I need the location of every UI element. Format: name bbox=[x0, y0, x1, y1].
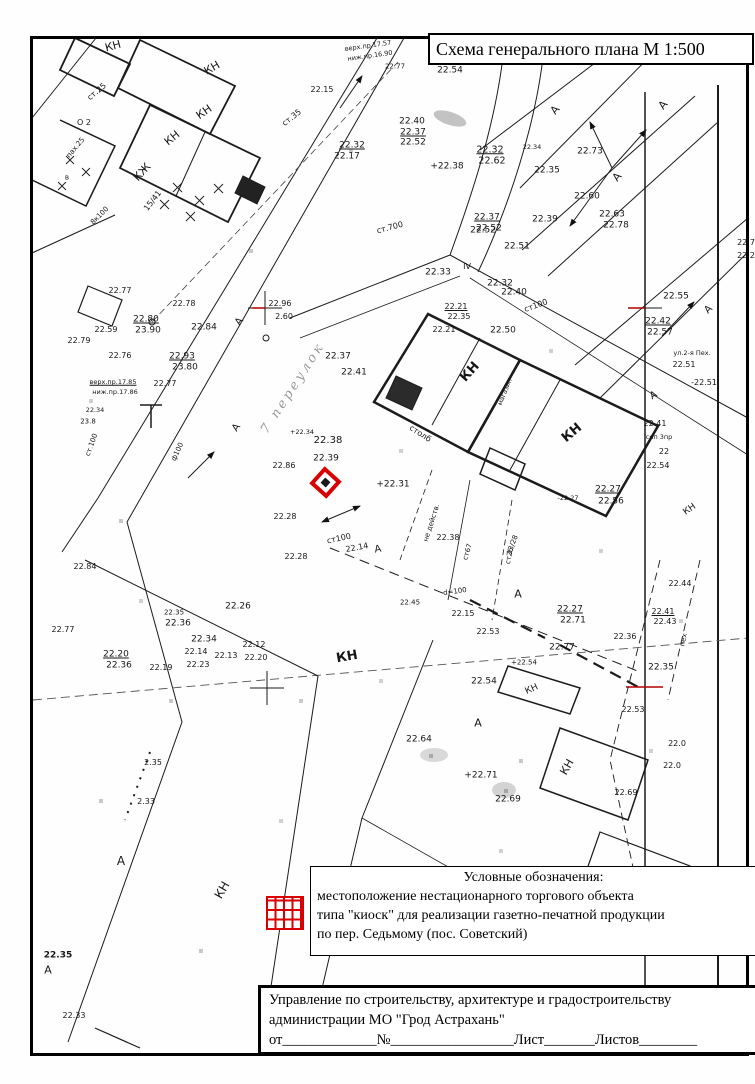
map-label: 22.86 bbox=[273, 462, 296, 470]
map-label: 2.35 bbox=[144, 759, 162, 767]
map-label: 22.35 bbox=[448, 313, 471, 321]
map-label: ул.2-я Пех. bbox=[673, 350, 710, 357]
map-label: КН bbox=[682, 503, 698, 518]
legend-line: по пер. Седьмому (пос. Советский) bbox=[317, 926, 750, 945]
map-label: 22.52 bbox=[400, 139, 426, 148]
map-label: 22.36 bbox=[106, 662, 132, 671]
map-label: А bbox=[231, 422, 243, 433]
map-label: КН bbox=[524, 683, 540, 697]
map-label: 22.32 bbox=[339, 142, 365, 151]
map-label: ст.100 bbox=[85, 433, 100, 457]
map-label: 22.54 bbox=[471, 678, 497, 687]
map-label: 22.38 bbox=[437, 534, 460, 542]
map-label: КН bbox=[335, 649, 358, 666]
map-label: 22.23 bbox=[187, 661, 210, 669]
map-label: ст100 bbox=[523, 298, 549, 314]
map-label: 22.0 bbox=[668, 740, 686, 748]
map-label: А bbox=[703, 304, 715, 316]
map-label: 22.20 bbox=[245, 654, 268, 662]
map-label: А bbox=[117, 855, 125, 867]
map-label: 22.42 bbox=[645, 318, 671, 327]
map-label: пех bbox=[679, 633, 689, 647]
map-label: 22 bbox=[659, 448, 669, 456]
map-label: 22.2 bbox=[737, 252, 755, 260]
map-label: 22.15 bbox=[452, 610, 475, 618]
map-label: 22.77 bbox=[52, 626, 75, 634]
map-label: 22.15 bbox=[311, 86, 334, 94]
map-label: 15/41 bbox=[143, 189, 164, 212]
map-label: 22.27 bbox=[595, 486, 621, 495]
map-label: 22.54 bbox=[647, 462, 670, 470]
map-label: столб bbox=[408, 424, 432, 444]
map-label: ст.35 bbox=[281, 108, 303, 128]
map-label: КЖ bbox=[131, 161, 152, 183]
map-label: 22.13 bbox=[215, 652, 238, 660]
map-label: О 2 bbox=[77, 119, 91, 127]
map-label: 22.73 bbox=[577, 148, 603, 157]
map-label: 22.35 bbox=[534, 167, 560, 176]
map-label: +22.54 bbox=[511, 660, 537, 667]
map-label: 23.90 bbox=[135, 327, 161, 336]
map-label: 22.37 bbox=[325, 353, 351, 362]
map-label: 2.60 bbox=[275, 313, 293, 321]
map-label: 22.28 bbox=[285, 553, 308, 561]
map-label: А bbox=[234, 316, 246, 327]
legend-line: типа "киоск" для реализации газетно-печа… bbox=[317, 907, 750, 926]
map-label: 22.51 bbox=[504, 243, 530, 252]
map-label: верх.пр.17.85 bbox=[90, 379, 137, 386]
map-label: 22.21 bbox=[433, 326, 456, 334]
map-label: 22.34 bbox=[86, 407, 105, 414]
map-label: +22.38 bbox=[430, 163, 463, 172]
map-label: -22.27 bbox=[558, 495, 579, 502]
map-label: КН bbox=[202, 59, 221, 77]
map-label: 22.34 bbox=[523, 144, 542, 151]
map-label: 22.38 bbox=[314, 436, 343, 446]
map-label: ниж.пр.17.86 bbox=[92, 389, 137, 396]
stamp-authority-line2: администрации МО "Грод Астрахань" bbox=[269, 1010, 754, 1030]
map-label: 22.45 bbox=[400, 600, 420, 607]
map-label: 22.43 bbox=[654, 618, 677, 626]
map-label: 22.35 bbox=[44, 952, 72, 961]
map-label: ст.25 bbox=[86, 82, 108, 102]
map-label: КН bbox=[194, 103, 213, 121]
map-label: 22.71 bbox=[560, 617, 586, 626]
map-label: 22.77 bbox=[154, 380, 177, 388]
map-label: А bbox=[374, 544, 382, 555]
map-label: КН bbox=[104, 39, 122, 54]
map-label: 22.76 bbox=[109, 352, 132, 360]
map-label: 22.41 bbox=[644, 420, 667, 428]
map-label: 22.36 bbox=[614, 633, 637, 641]
map-label: 22.51 bbox=[673, 361, 696, 369]
map-label: 22.36 bbox=[165, 620, 191, 629]
map-label: 22.33 bbox=[425, 269, 451, 278]
map-label: 22.41 bbox=[341, 369, 367, 378]
map-label: ст.700 bbox=[376, 221, 404, 236]
map-label: 7 переулок bbox=[259, 340, 328, 436]
map-label: пах.25 bbox=[66, 136, 87, 159]
map-label: 22.80 bbox=[133, 316, 159, 325]
map-title: Схема генерального плана М 1:500 bbox=[436, 39, 705, 60]
legend-heading: Условные обозначения: bbox=[317, 869, 750, 888]
map-label: 22.39 bbox=[313, 455, 339, 464]
map-label: 22.55 bbox=[663, 293, 689, 302]
map-label: 22.17 bbox=[334, 153, 360, 162]
map-label: А bbox=[548, 104, 561, 117]
stamp-box: Управление по строительству, архитектуре… bbox=[258, 985, 755, 1055]
map-label: 22.27 bbox=[557, 606, 583, 615]
map-label: 22.78 bbox=[603, 222, 629, 231]
map-label: 22.28 bbox=[274, 513, 297, 521]
stamp-fields-line: от_____________№_________________Лист___… bbox=[269, 1030, 754, 1050]
map-label: ст67 bbox=[462, 543, 474, 561]
map-label: А bbox=[44, 965, 52, 976]
map-label: 22.40 bbox=[399, 118, 425, 127]
map-label: 22.54 bbox=[437, 67, 463, 76]
map-label: сип 3пр bbox=[646, 434, 673, 441]
legend-box: Условные обозначения: местоположение нес… bbox=[310, 866, 755, 956]
map-label: 2.33 bbox=[137, 798, 155, 806]
general-plan-map: КНКНКНКНКЖ15/41ст.25О 2пах.25в8к100ст.35… bbox=[0, 0, 755, 1084]
map-label: 22.84 bbox=[191, 324, 217, 333]
map-label: 22.69 bbox=[615, 789, 638, 797]
map-label: 22.20 bbox=[103, 651, 129, 660]
map-label: 22.79 bbox=[68, 337, 91, 345]
map-label: 22.12 bbox=[243, 641, 266, 649]
map-label: магазин bbox=[497, 378, 514, 407]
map-label: КН bbox=[560, 421, 585, 445]
map-label: 22.21 bbox=[445, 303, 468, 311]
map-label: 22.7 bbox=[737, 239, 755, 247]
map-label: КН bbox=[558, 757, 576, 776]
map-label: +22.71 bbox=[464, 772, 497, 781]
map-label: 13/28 bbox=[506, 534, 519, 555]
map-label: 22.60 bbox=[574, 193, 600, 202]
map-label: 22.34 bbox=[191, 636, 217, 645]
map-label: 22.96 bbox=[269, 300, 292, 308]
map-label: 22.59 bbox=[95, 326, 118, 334]
map-label: 22.37 bbox=[400, 129, 426, 138]
map-label: 22.14 bbox=[185, 648, 208, 656]
map-label: 22.26 bbox=[225, 603, 251, 612]
map-label: 8к100 bbox=[90, 206, 111, 227]
map-label: А bbox=[649, 390, 660, 402]
map-label: 22.50 bbox=[490, 327, 516, 336]
map-label: 22.53 bbox=[622, 706, 645, 714]
map-label: 22.33 bbox=[63, 1012, 86, 1020]
map-label: А bbox=[514, 589, 522, 600]
map-label: 22.35 bbox=[648, 664, 674, 673]
map-label: в bbox=[65, 175, 69, 182]
map-label: 22.37 bbox=[474, 214, 500, 223]
map-label: +22.34 bbox=[290, 429, 314, 436]
map-label: 22.44 bbox=[669, 580, 692, 588]
stamp-authority-line1: Управление по строительству, архитектуре… bbox=[269, 990, 754, 1010]
map-label: 22.32 bbox=[476, 145, 503, 155]
map-label: 22.57 bbox=[647, 329, 673, 338]
map-label: А bbox=[474, 718, 482, 729]
map-label: 22.63 bbox=[599, 211, 625, 220]
map-label: 22.77 bbox=[549, 644, 575, 653]
map-label: ф100 bbox=[171, 442, 186, 463]
map-label: 22.78 bbox=[173, 300, 196, 308]
map-label: 23.80 bbox=[172, 364, 198, 373]
map-label: 22.19 bbox=[150, 664, 173, 672]
map-label: 22.52 bbox=[470, 227, 496, 236]
map-label: 22.39 bbox=[532, 216, 558, 225]
map-label: 22.93 bbox=[169, 353, 195, 362]
map-label: 22.77 bbox=[109, 287, 132, 295]
map-label: 22.56 bbox=[598, 498, 624, 507]
map-label: -22.51 bbox=[691, 379, 717, 387]
map-label: 22.64 bbox=[406, 736, 432, 745]
map-label: 22.40 bbox=[501, 289, 527, 298]
map-label: IV bbox=[463, 263, 471, 271]
map-label: 23.8 bbox=[80, 419, 96, 426]
map-label: 22.41 bbox=[652, 608, 675, 616]
kiosk-legend-symbol-icon bbox=[266, 896, 304, 930]
map-label: d=100 bbox=[443, 587, 467, 597]
map-label: 22.35 bbox=[164, 610, 184, 617]
map-label: КН bbox=[212, 879, 231, 900]
legend-line: местоположение нестационарного торгового… bbox=[317, 888, 750, 907]
map-label: КН bbox=[458, 360, 482, 385]
map-label: 22.0 bbox=[663, 762, 681, 770]
map-label: +22.31 bbox=[376, 481, 409, 490]
kiosk-marker-core bbox=[321, 478, 331, 488]
map-label: 22.77 bbox=[385, 64, 405, 71]
map-label: КН bbox=[162, 129, 181, 148]
map-label: 22.84 bbox=[74, 563, 97, 571]
map-label: 22.14 bbox=[345, 542, 369, 554]
map-label: 22.53 bbox=[477, 628, 500, 636]
map-label: 22.62 bbox=[478, 156, 505, 166]
map-label: 22.69 bbox=[495, 796, 521, 805]
map-label: А bbox=[656, 99, 669, 112]
title-box: Схема генерального плана М 1:500 bbox=[428, 33, 754, 65]
map-label: А bbox=[610, 171, 623, 184]
